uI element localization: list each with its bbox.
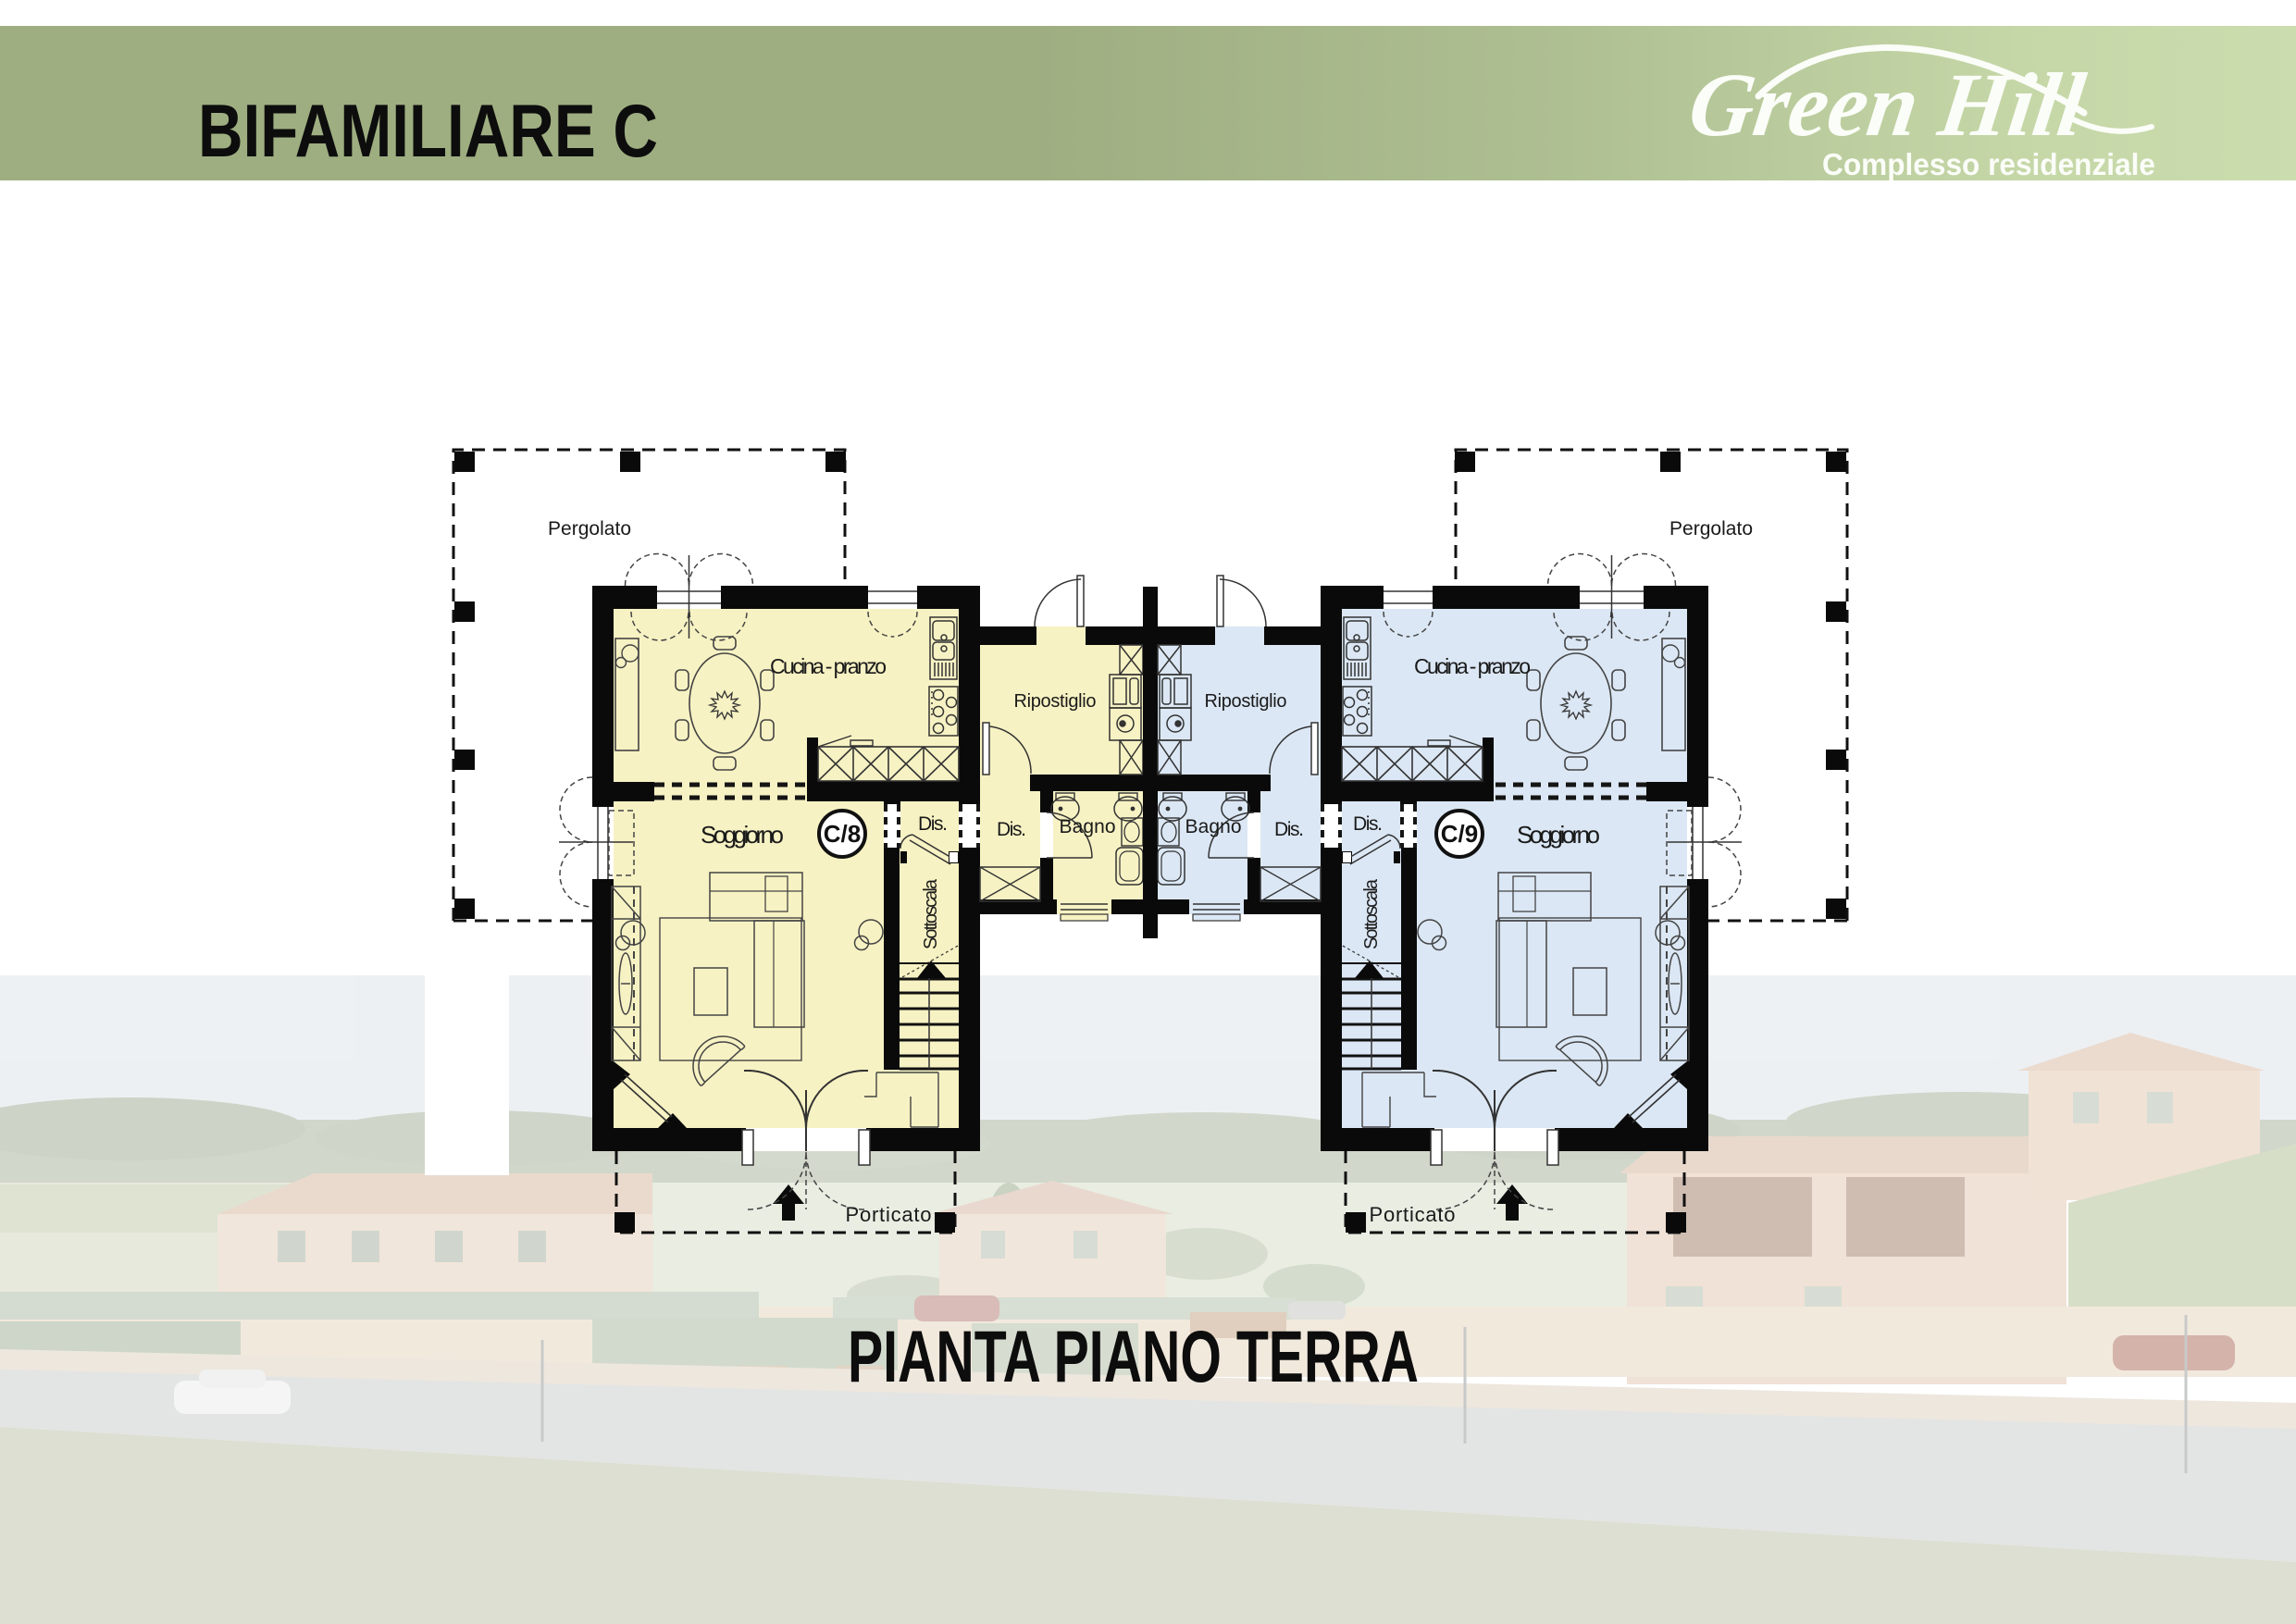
- svg-text:Sottoscala: Sottoscala: [1361, 878, 1382, 949]
- svg-text:Ripostiglio: Ripostiglio: [1014, 691, 1097, 712]
- svg-text:Ripostiglio: Ripostiglio: [1205, 691, 1287, 712]
- svg-text:Bagno: Bagno: [1185, 816, 1242, 837]
- svg-text:Dis.: Dis.: [997, 819, 1026, 840]
- svg-text:Porticato: Porticato: [846, 1203, 932, 1226]
- svg-text:Dis.: Dis.: [1353, 813, 1383, 835]
- svg-text:Soggiorno: Soggiorno: [701, 821, 784, 849]
- svg-text:Dis.: Dis.: [918, 813, 948, 835]
- svg-text:Porticato: Porticato: [1370, 1203, 1456, 1226]
- svg-text:Cucina - pranzo: Cucina - pranzo: [1414, 654, 1531, 678]
- svg-text:Complesso residenziale: Complesso residenziale: [1822, 147, 2155, 181]
- svg-text:Sottoscala: Sottoscala: [921, 878, 941, 949]
- svg-text:Pergolato: Pergolato: [1669, 518, 1753, 539]
- svg-text:Cucina - pranzo: Cucina - pranzo: [770, 654, 887, 678]
- svg-text:BIFAMILIARE C: BIFAMILIARE C: [198, 90, 658, 173]
- svg-text:PIANTA PIANO TERRA: PIANTA PIANO TERRA: [848, 1315, 1419, 1397]
- svg-text:C/8: C/8: [824, 820, 861, 848]
- svg-text:Dis.: Dis.: [1274, 819, 1304, 840]
- svg-text:Bagno: Bagno: [1060, 816, 1116, 837]
- svg-text:C/9: C/9: [1441, 820, 1478, 848]
- svg-text:Pergolato: Pergolato: [548, 518, 631, 539]
- svg-text:Green Hill: Green Hill: [1683, 55, 2091, 155]
- svg-text:Soggiorno: Soggiorno: [1517, 821, 1600, 849]
